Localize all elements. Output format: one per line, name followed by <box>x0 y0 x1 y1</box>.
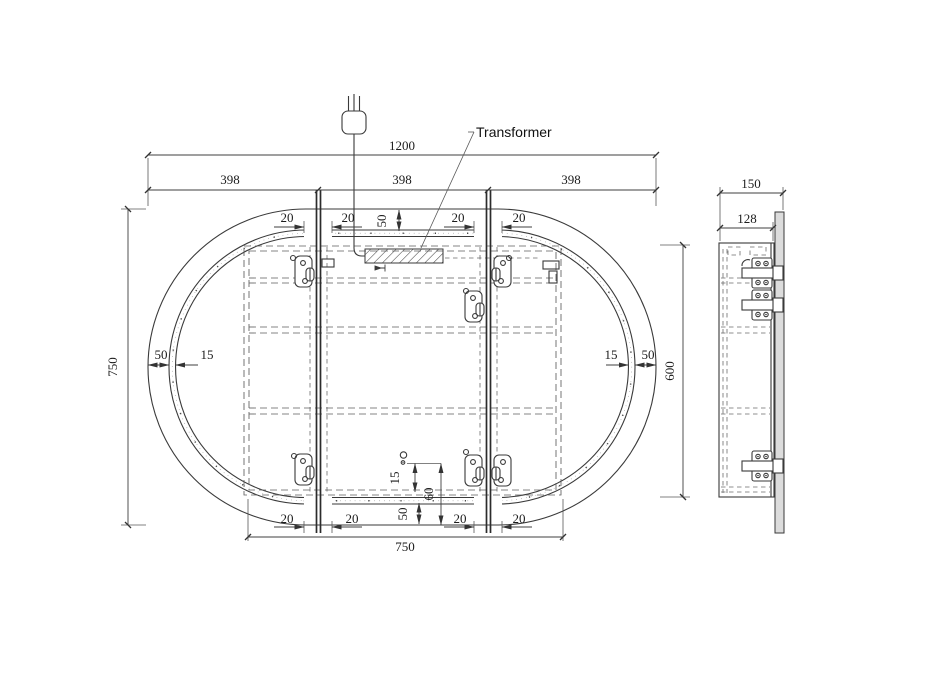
screw-hole <box>291 256 296 261</box>
mounting-clip <box>492 455 511 486</box>
mounting-rail-right <box>487 190 491 533</box>
dim-label-750-plate: 750 <box>395 539 415 554</box>
dimension-total-height: 750 <box>105 209 146 525</box>
mounting-clip <box>465 455 484 486</box>
strip-gap <box>304 496 332 506</box>
dimensions: 1200 398 398 398 750 600 <box>105 138 783 554</box>
dim-label-20: 20 <box>513 210 526 225</box>
dim-label-50-left: 50 <box>155 347 168 362</box>
dimension-side-depths: 150 128 <box>720 176 783 241</box>
technical-drawing-page: 1200 398 398 398 750 600 <box>0 0 933 700</box>
mounting-clip <box>465 291 484 322</box>
dim-label-15-left: 15 <box>201 347 214 362</box>
power-plug-icon <box>342 94 366 134</box>
dimension-plate-width: 750 <box>248 499 563 554</box>
mounting-rail-left <box>317 190 321 533</box>
dimension-rail-spans: 398 398 398 <box>148 172 656 193</box>
dim-label-600: 600 <box>662 361 677 381</box>
dim-label-60-sensor: 60 <box>421 488 436 501</box>
strip-gap <box>474 229 502 239</box>
side-mirror-glass <box>775 212 784 533</box>
dim-label-20: 20 <box>513 511 526 526</box>
dim-label-20: 20 <box>346 511 359 526</box>
dim-label-20: 20 <box>281 210 294 225</box>
dim-label-20: 20 <box>281 511 294 526</box>
dimension-edge-gap-left: 50 15 <box>148 347 214 365</box>
dim-label-398-mid: 398 <box>392 172 412 187</box>
dim-label-1200: 1200 <box>389 138 415 153</box>
dim-label-15-right: 15 <box>605 347 618 362</box>
screw-hole <box>464 450 469 455</box>
dim-label-398-left: 398 <box>220 172 240 187</box>
transformer-box <box>365 249 443 263</box>
dim-label-20: 20 <box>342 210 355 225</box>
mirror-technical-drawing: 1200 398 398 398 750 600 <box>0 0 933 700</box>
dim-label-398-right: 398 <box>561 172 581 187</box>
dim-label-50-top: 50 <box>374 215 389 228</box>
transformer-cable <box>354 134 365 256</box>
dim-label-150: 150 <box>741 176 761 191</box>
dim-label-15-sensor: 15 <box>387 472 402 485</box>
dim-label-50-right: 50 <box>642 347 655 362</box>
strip-gap <box>304 229 332 239</box>
side-view <box>719 212 784 533</box>
mounting-clip <box>295 256 314 287</box>
dim-label-750-height: 750 <box>105 357 120 377</box>
dim-label-20: 20 <box>454 511 467 526</box>
transformer-label: Transformer <box>476 124 552 140</box>
dim-label-128: 128 <box>737 211 757 226</box>
small-arrow-mark <box>375 265 385 272</box>
dimension-plate-height: 600 <box>660 245 690 497</box>
mounting-clips <box>291 256 512 487</box>
dimension-bottom-gaps: 20 20 20 20 50 <box>274 503 532 533</box>
strip-gap <box>474 496 502 506</box>
dimension-edge-gap-right: 15 50 <box>605 347 657 365</box>
dim-label-20: 20 <box>452 210 465 225</box>
touch-sensor <box>400 452 441 465</box>
front-view <box>148 94 656 533</box>
mounting-clip <box>295 454 314 485</box>
dim-label-50-bottom: 50 <box>395 508 410 521</box>
